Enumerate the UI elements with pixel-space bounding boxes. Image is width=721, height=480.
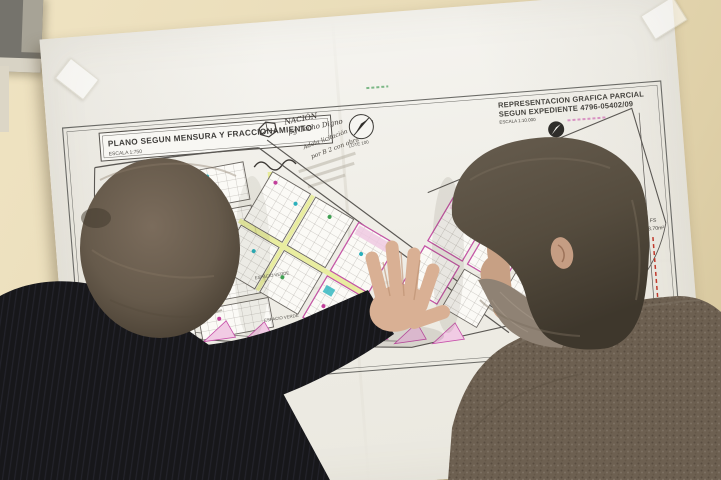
person-left-head [80, 158, 240, 338]
person-right-hair [452, 137, 649, 349]
person-right-figure [448, 137, 721, 480]
photo-scene: PLANO SEGUN MENSURA Y FRACCIONAMIENTO ES… [0, 0, 721, 480]
person-left-figure [0, 158, 443, 480]
people-overlay [0, 0, 721, 480]
